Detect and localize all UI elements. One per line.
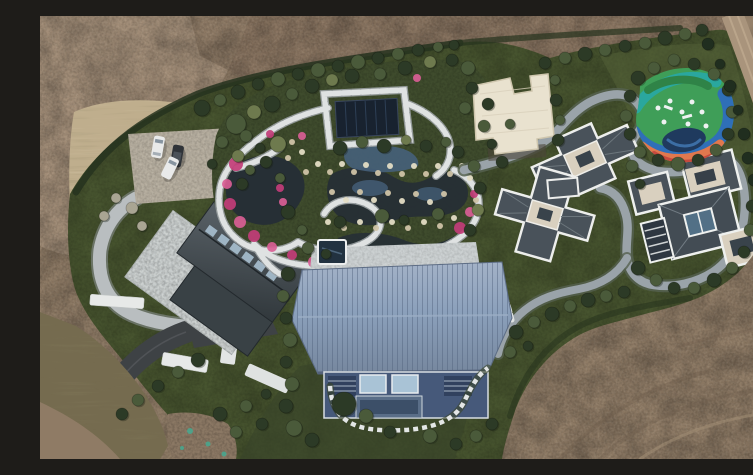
film-grain <box>40 16 753 459</box>
aerial-photo: Overhead aerial drone photograph of a la… <box>40 16 753 459</box>
aerial-photo-canvas <box>40 16 753 459</box>
